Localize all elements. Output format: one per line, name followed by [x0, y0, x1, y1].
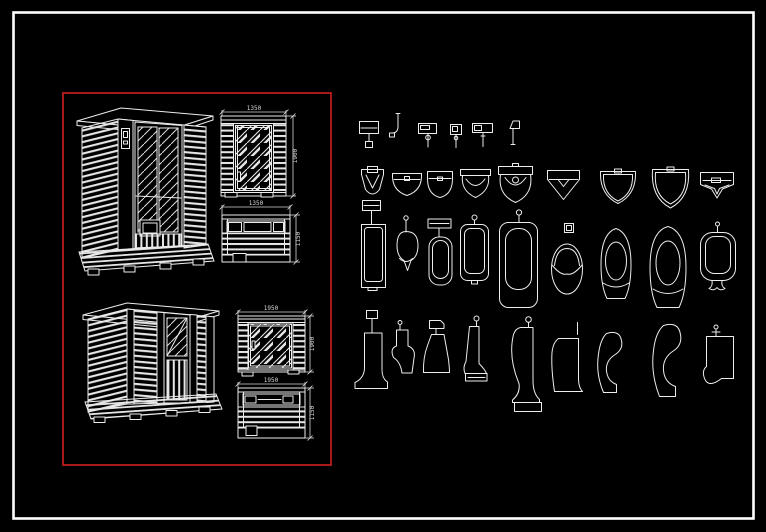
urinal-side-9 [703, 325, 733, 384]
urinal-plan-2 [392, 174, 421, 196]
urinal-side-2 [392, 321, 414, 374]
urinal-front-5 [500, 210, 538, 308]
urinal-side-4 [464, 316, 487, 381]
urinal-plan-4 [461, 170, 491, 198]
urinal-side-3 [423, 321, 449, 373]
urinal-front-4 [461, 215, 489, 284]
urinal-plan-8 [652, 167, 688, 208]
urinal-front-7 [601, 229, 631, 299]
sauna-isometric-view-2 [83, 303, 222, 423]
sauna-elevation-rear: 1950 1150 [236, 377, 317, 441]
flush-valve-4 [451, 125, 462, 148]
dimension-height: 1900 [286, 114, 299, 199]
sauna-isometric-view-1 [77, 108, 214, 275]
flush-valve-5 [473, 124, 493, 147]
sauna-elevation-side: 1350 1150 [220, 200, 303, 265]
urinal-side-row [355, 311, 734, 412]
urinal-plan-3 [428, 172, 453, 198]
urinal-front-1 [362, 201, 386, 291]
sauna-elevation-window: 1950 1900 [236, 305, 317, 376]
urinal-plan-6 [548, 171, 580, 200]
urinal-plan-9 [701, 173, 734, 199]
urinal-front-2 [397, 216, 418, 271]
dimension-width: 1950 [236, 377, 308, 388]
dim-label: 1150 [295, 231, 302, 246]
urinal-plan-7 [600, 169, 635, 204]
flush-valve-2 [390, 114, 401, 138]
drawing-sheet: 1350 1900 1350 [0, 0, 766, 532]
urinal-front-6 [552, 224, 583, 295]
dim-label: 1950 [264, 305, 279, 312]
dimension-width: 1350 [220, 105, 289, 116]
flush-valve-1 [360, 122, 379, 148]
urinal-side-8 [653, 324, 681, 396]
urinal-plan-1 [362, 167, 384, 195]
sauna-elevation-door: 1350 1900 [220, 105, 300, 199]
cad-canvas: 1350 1900 1350 [0, 0, 766, 532]
dimension-height: 1150 [290, 213, 302, 265]
dim-label: 1350 [247, 105, 262, 112]
urinal-front-9 [701, 222, 736, 290]
dim-label: 1150 [309, 405, 316, 420]
flush-valve-3 [419, 124, 437, 148]
dimension-width: 1350 [220, 200, 293, 215]
dim-label: 1900 [309, 336, 316, 351]
flush-valve-row [360, 114, 520, 148]
dim-label: 1350 [249, 200, 264, 207]
urinal-front-3 [428, 219, 452, 285]
flush-valve-6 [510, 121, 520, 145]
urinal-side-1 [355, 311, 388, 389]
urinal-side-5 [512, 317, 542, 412]
dim-label: 1900 [292, 148, 299, 163]
dimension-width: 1950 [236, 305, 308, 316]
urinal-front-row [362, 201, 736, 308]
dimension-height: 1150 [305, 386, 316, 441]
urinal-front-8 [650, 227, 686, 308]
dimension-height: 1900 [305, 314, 316, 375]
urinal-side-6 [552, 323, 583, 392]
urinal-plan-5 [499, 164, 533, 203]
urinal-plan-row [362, 164, 734, 209]
dim-label: 1950 [264, 377, 279, 384]
urinal-side-7 [598, 332, 622, 392]
